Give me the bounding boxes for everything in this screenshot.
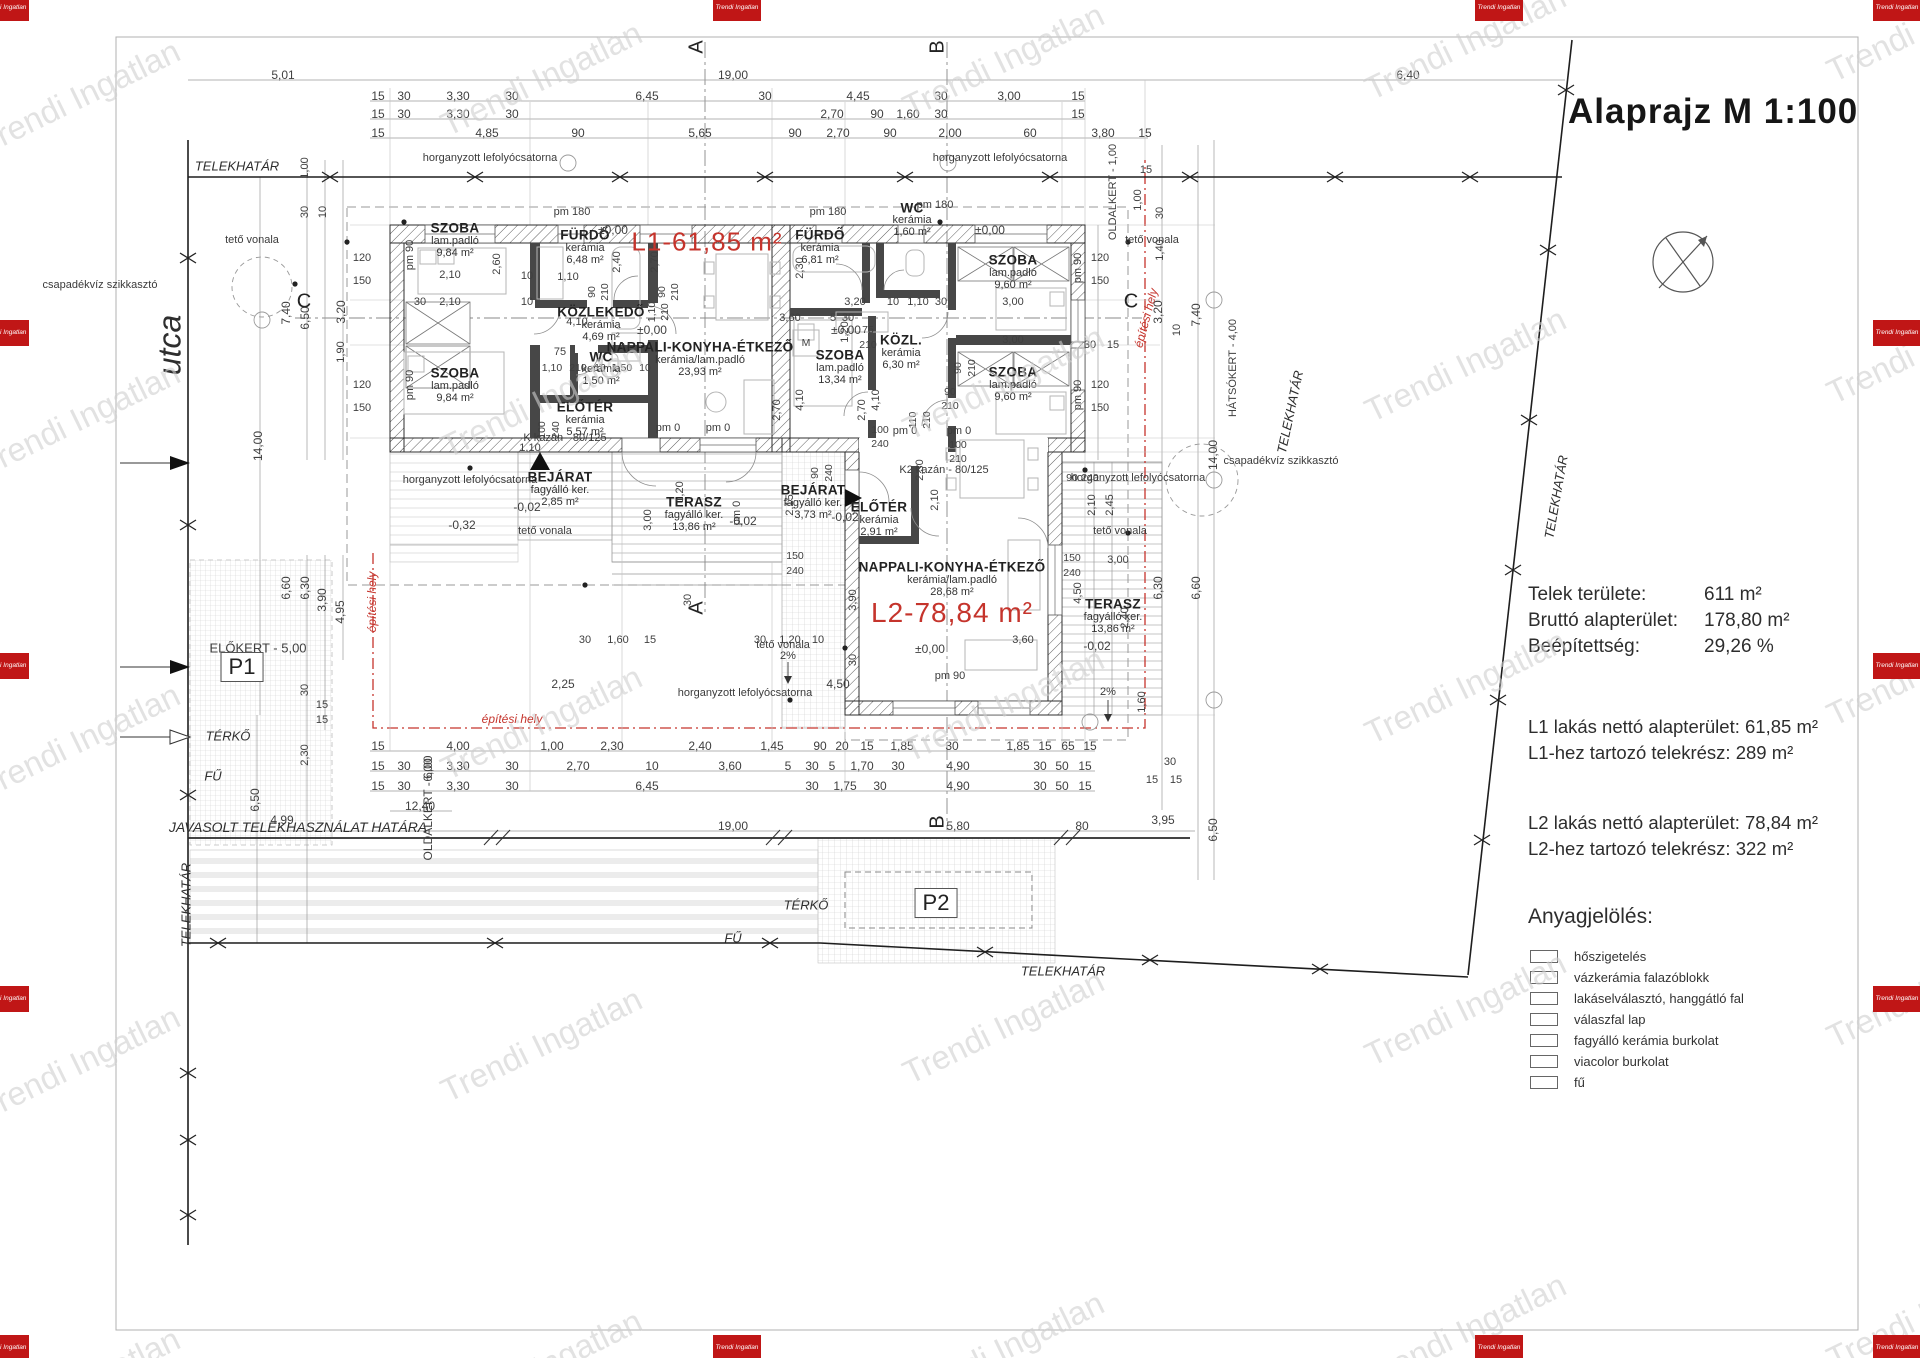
dim-label: 6,30	[298, 576, 312, 599]
dim-label: 10	[645, 759, 658, 773]
watermark-stamp: Trendi Ingatlan	[1873, 0, 1920, 21]
dim-label: 6,50	[248, 788, 262, 811]
room-label: SZOBA	[431, 366, 480, 381]
dim-label: 80	[1075, 819, 1088, 833]
dim-label: 15	[644, 634, 656, 646]
legend-label: hőszigetelés	[1574, 949, 1646, 964]
dim-label: 30	[754, 634, 766, 646]
room-label: SZOBA	[989, 365, 1038, 380]
dim-label: 30	[1084, 339, 1096, 351]
room-sublabel: 9,84 m²	[436, 392, 473, 404]
dim-label: 30	[505, 107, 518, 121]
dim-label: 10	[812, 634, 824, 646]
dim-label: 30	[505, 89, 518, 103]
slope-label: 2%	[780, 650, 796, 662]
boundary-label: TELEKHATÁR	[179, 863, 194, 947]
dim-label: 2,10	[439, 296, 460, 308]
dim-label: 90	[656, 286, 668, 298]
dim-label: 1,60	[896, 107, 919, 121]
dim-label: 4,99	[270, 813, 293, 827]
watermark-stamp: Trendi Ingatlan	[713, 1335, 761, 1358]
dim-label: 5,65	[688, 126, 711, 140]
room-label: SZOBA	[816, 348, 865, 363]
gutter-label: horganyzott lefolyócsatorna	[423, 152, 558, 164]
dim-label: M	[622, 341, 631, 353]
dim-label: 90	[809, 467, 821, 479]
page-title: Alaprajz M 1:100	[1568, 92, 1858, 132]
dim-label: 2,45	[1104, 494, 1116, 515]
dim-label: 2,25	[551, 677, 574, 691]
dim-label: 240	[786, 565, 804, 577]
watermark-stamp: Trendi Ingatlan	[0, 320, 29, 346]
dim-label: 150	[353, 402, 371, 414]
dim-label: 3,00	[1002, 296, 1023, 308]
unit-summary-line: L2-hez tartozó telekrész: 322 m²	[1528, 838, 1793, 860]
bar-swatch-icon	[1530, 1013, 1558, 1026]
unit-l2-area: L2-78,84 m²	[871, 597, 1033, 629]
dim-label: 30	[505, 779, 518, 793]
dim-label: -0,02	[1083, 639, 1110, 653]
grid-swatch-icon	[1530, 1055, 1558, 1068]
dim-label: 3,00	[1002, 334, 1023, 346]
floorplan-sheet: Alaprajz M 1:100 Anyagjelölés: hőszigete…	[0, 0, 1920, 1358]
dim-label: 15	[371, 126, 384, 140]
summary-value: 178,80 m²	[1704, 610, 1790, 632]
summary-label: Bruttó alapterület:	[1528, 610, 1678, 631]
room-sublabel: 1,50 m²	[582, 375, 619, 387]
dim-label: 120	[353, 379, 371, 391]
dim-label: 2,30	[600, 739, 623, 753]
legend-label: fagyálló kerámia burkolat	[1574, 1033, 1719, 1048]
dim-label: pm 0	[706, 422, 730, 434]
dim-label: 30	[1164, 756, 1176, 768]
dim-label: 150	[1063, 552, 1081, 564]
legend-label: fű	[1574, 1075, 1585, 1090]
dim-label: 90	[1066, 472, 1078, 484]
dim-label: 150	[1091, 275, 1109, 287]
summary-row: Beépítettség:29,26 %	[1528, 636, 1858, 658]
dim-label: 2,30	[794, 257, 806, 278]
dim-label: -0,02	[513, 500, 540, 514]
unit-summary-line: L1 lakás nettó alapterület: 61,85 m²	[1528, 716, 1818, 738]
dim-label: 15	[1078, 759, 1091, 773]
section-marker-a: A	[686, 40, 709, 53]
dim-label: 20	[835, 739, 848, 753]
dim-label: 2,70	[771, 399, 783, 420]
dim-label: 100	[949, 439, 967, 451]
dim-label: 210	[659, 303, 671, 321]
dim-label: 30	[505, 759, 518, 773]
crosshatch-swatch-icon	[1530, 950, 1558, 963]
dim-label: 1,50	[612, 362, 632, 374]
dim-label: pm 0	[656, 422, 680, 434]
room-sublabel: 9,60 m²	[994, 391, 1031, 403]
room-sublabel: lam.padló	[431, 380, 479, 392]
building-zone-label: építési hely	[365, 572, 379, 633]
room-label: FÜRDŐ	[795, 228, 845, 243]
dim-label: 110	[907, 412, 919, 429]
dim-label: 6,45	[635, 89, 658, 103]
watermark-stamp: Trendi Ingatlan	[1873, 986, 1920, 1012]
summary-value: 29,26 %	[1704, 636, 1774, 658]
dim-label: 120	[1091, 252, 1109, 264]
watermark-stamp: Trendi Ingatlan	[1873, 653, 1920, 679]
dim-label: 75	[554, 346, 566, 358]
dim-label: 4,10	[566, 316, 587, 328]
dim-label: 1,00	[1132, 189, 1144, 210]
dim-label: 150	[786, 550, 804, 562]
dim-label: 6,30	[1151, 576, 1165, 599]
material-legend: hőszigetelésvázkerámia falazóblokklakáse…	[1530, 946, 1744, 1093]
dim-label: 50	[1055, 779, 1068, 793]
dim-label: 1,20	[779, 634, 800, 646]
dim-label: 30	[934, 89, 947, 103]
dim-label: 90	[944, 386, 956, 398]
summary-row: Bruttó alapterület:178,80 m²	[1528, 610, 1858, 632]
section-marker-c: C	[1124, 291, 1138, 314]
dim-label: 210	[859, 339, 877, 351]
room-sublabel: 5,57 m²	[566, 426, 603, 438]
dim-label: 4,50	[826, 677, 849, 691]
dim-label: 30	[397, 89, 410, 103]
dim-label: 4,90	[946, 779, 969, 793]
plain-swatch-icon	[1530, 1034, 1558, 1047]
dim-label: 6,40	[1396, 68, 1419, 82]
dim-label: 2,40	[611, 251, 623, 272]
unit-summary-line: L1-hez tartozó telekrész: 289 m²	[1528, 742, 1793, 764]
dim-label: pm 0	[947, 425, 971, 437]
dim-label: 2,70	[566, 759, 589, 773]
dim-label: 150	[1091, 402, 1109, 414]
dim-label: 210	[921, 411, 933, 429]
room-label: NAPPALI-KONYHA-ÉTKEZŐ	[859, 560, 1046, 575]
paving-label: TÉRKŐ	[784, 898, 829, 913]
dim-label: 65	[1061, 739, 1074, 753]
dim-label: 15	[371, 107, 384, 121]
room-sublabel: 13,86 m²	[672, 521, 715, 533]
room-sublabel: 6,81 m²	[801, 254, 838, 266]
dim-label: 3,20	[334, 300, 348, 323]
dim-label: 30	[299, 206, 311, 218]
dim-label: 2,15	[784, 494, 796, 515]
diag-swatch-icon	[1530, 971, 1558, 984]
legend-item: vázkerámia falazóblokk	[1530, 967, 1744, 988]
dim-label: 4,00	[446, 739, 469, 753]
street-label: utca	[152, 315, 189, 375]
boundary-label: TELEKHATÁR	[195, 159, 279, 174]
dim-label: 3,00	[997, 89, 1020, 103]
dim-label: 10	[1171, 324, 1183, 336]
dim-label: 15	[1140, 164, 1152, 176]
dim-label: 10	[639, 362, 651, 374]
dim-label: 3,30	[446, 107, 469, 121]
dim-label: pm 0	[731, 501, 743, 525]
dim-label: pm 90	[404, 370, 416, 401]
dim-label: 15	[1170, 774, 1182, 786]
dim-label: 6,60	[279, 576, 293, 599]
room-sublabel: 1,60 m²	[893, 226, 930, 238]
soakaway-label: csapadékvíz szikkasztó	[1224, 455, 1339, 467]
dim-label: 210	[966, 359, 978, 377]
dim-label: 15	[1038, 739, 1051, 753]
dim-label: 1,20	[839, 321, 851, 342]
back-garden-label: HÁTSÓKERT - 4,00	[1227, 319, 1239, 417]
dim-label: 1,20	[674, 481, 686, 502]
dim-label: 30	[397, 107, 410, 121]
dim-label: 1,60	[1136, 691, 1148, 712]
dim-label: 3,60	[718, 759, 741, 773]
legend-label: válaszfal lap	[1574, 1012, 1646, 1027]
dim-label: 30	[945, 739, 958, 753]
side-garden-label: OLDALKERT - 1,00	[1107, 144, 1119, 240]
dim-label: 1,10	[542, 362, 562, 374]
dim-label: 90	[586, 286, 598, 298]
parking-marker-p1: P1	[221, 652, 264, 682]
dim-label: 3,80	[1091, 126, 1114, 140]
room-label: ELŐTÉR	[851, 500, 908, 515]
dim-label: 240	[871, 438, 889, 450]
dim-label: 5,80	[946, 819, 969, 833]
room-sublabel: 9,84 m²	[436, 247, 473, 259]
dim-label: 210	[569, 362, 587, 374]
watermark-stamp: Trendi Ingatlan	[0, 986, 29, 1012]
dim-label: 30	[397, 759, 410, 773]
dim-label: 15	[1071, 107, 1084, 121]
room-sublabel: kerámia/lam.padló	[655, 354, 745, 366]
dim-label: 2,30	[299, 744, 311, 765]
dim-label: 30	[847, 654, 859, 666]
gutter-label: horganyzott lefolyócsatorna	[678, 687, 813, 699]
unit-summary-line: L2 lakás nettó alapterület: 78,84 m²	[1528, 812, 1818, 834]
dim-label: 15	[371, 89, 384, 103]
dim-label: 210	[669, 283, 681, 301]
dim-label: 210	[949, 453, 967, 465]
room-label: SZOBA	[989, 253, 1038, 268]
dim-label: 90	[883, 126, 896, 140]
dim-label: 3,60	[1012, 634, 1033, 646]
dim-label: 120	[1091, 379, 1109, 391]
dim-label: 30	[934, 107, 947, 121]
dim-label: 6,00	[421, 758, 435, 781]
dim-label: 1,10	[557, 271, 578, 283]
room-sublabel: 9,60 m²	[994, 279, 1031, 291]
dim-label: 50	[1055, 759, 1068, 773]
legend-label: viacolor burkolat	[1574, 1054, 1669, 1069]
dim-label: 1,70	[850, 759, 873, 773]
room-sublabel: 6,48 m²	[566, 254, 603, 266]
dim-label: 4,45	[846, 89, 869, 103]
dim-label: 3,60	[779, 312, 800, 324]
dim-label: pm 90	[935, 670, 966, 682]
room-sublabel: 13,34 m²	[818, 374, 861, 386]
dim-label: pm 90	[1072, 380, 1084, 411]
dim-label: 100	[871, 424, 889, 436]
roof-line-label: tető vonala	[1093, 525, 1147, 537]
dim-label: 10	[521, 270, 533, 282]
dim-label: 1,10	[519, 442, 540, 454]
dim-label: 14,00	[1206, 440, 1220, 470]
dim-label: 30	[758, 89, 771, 103]
dim-label: 3,30	[446, 759, 469, 773]
dim-label: 15	[860, 739, 873, 753]
room-sublabel: lam.padló	[989, 379, 1037, 391]
dim-label: 150	[353, 275, 371, 287]
dim-label: 10	[887, 296, 899, 308]
room-sublabel: kerámia	[565, 414, 604, 426]
watermark-stamp: Trendi Ingatlan	[1475, 1335, 1523, 1358]
room-sublabel: kerámia	[859, 514, 898, 526]
room-sublabel: fagyálló ker.	[1084, 611, 1143, 623]
plot-boundaries	[188, 40, 1572, 1245]
watermark-stamp: Trendi Ingatlan	[0, 1335, 29, 1358]
dim-label: 10	[521, 296, 533, 308]
dim-label: 4,90	[946, 759, 969, 773]
dim-label: 90	[813, 739, 826, 753]
dim-label: 210	[599, 283, 611, 301]
dim-label: 15	[371, 759, 384, 773]
dim-label: 1,00	[299, 157, 311, 178]
room-sublabel: 28,68 m²	[930, 586, 973, 598]
section-marker-b: B	[927, 40, 950, 53]
dim-label: pm 180	[554, 206, 591, 218]
boiler-label: K2 kazán - 80/125	[899, 464, 988, 476]
dim-label: 3,90	[847, 589, 859, 610]
proposed-use-boundary-label: JAVASOLT TELEKHASZNÁLAT HATÁRA	[169, 819, 427, 835]
room-label: SZOBA	[431, 221, 480, 236]
dim-label: ±0,00	[598, 223, 628, 237]
dim-label: 12,40	[405, 799, 435, 813]
room-label: ELŐTÉR	[557, 400, 614, 415]
dim-label: 1,75	[833, 779, 856, 793]
dim-label: 2,70	[820, 107, 843, 121]
north-arrow-icon	[1653, 232, 1713, 292]
dim-label: 240	[550, 421, 562, 439]
dim-label: 30	[414, 296, 426, 308]
dim-label: 30	[873, 779, 886, 793]
dim-label: 3,30	[446, 779, 469, 793]
dim-label: 5,01	[271, 68, 294, 82]
legend-item: válaszfal lap	[1530, 1009, 1744, 1030]
dim-label: 6,50	[1206, 818, 1220, 841]
dim-label: 6,60	[1189, 576, 1203, 599]
dim-label: 7,40	[279, 301, 293, 324]
dim-label: -0,32	[448, 518, 475, 532]
paving-label: TÉRKŐ	[206, 729, 251, 744]
dim-label: 90	[571, 126, 584, 140]
room-sublabel: kerámia/lam.padló	[907, 574, 997, 586]
dim-label: 1,90	[335, 341, 347, 362]
dim-label: 2,10	[929, 489, 941, 510]
parking-marker-p2: P2	[915, 888, 958, 918]
dim-label: 4,10	[794, 389, 806, 410]
dim-label: 1,00	[540, 739, 563, 753]
grass-label: FŰ	[724, 931, 741, 946]
dim-label: ±0,00	[975, 223, 1005, 237]
dim-label: 5	[785, 759, 792, 773]
room-sublabel: kerámia	[800, 242, 839, 254]
dim-label: 4,85	[475, 126, 498, 140]
dim-label: 30	[682, 594, 694, 606]
room-sublabel: 23,93 m²	[678, 366, 721, 378]
dim-label: pm 90	[1072, 253, 1084, 284]
legend-item: fagyálló kerámia burkolat	[1530, 1030, 1744, 1051]
dim-label: 3,00	[642, 509, 654, 530]
dim-label: 2,00	[938, 126, 961, 140]
roof-line-label: tető vonala	[1125, 234, 1179, 246]
room-sublabel: kerámia	[881, 347, 920, 359]
dim-label: 4,95	[333, 600, 347, 623]
diag2-swatch-icon	[1530, 992, 1558, 1005]
dim-label: 240	[1081, 472, 1099, 484]
dim-label: 15	[316, 699, 328, 711]
dim-label: 3,20	[1151, 300, 1165, 323]
room-label: KÖZL.	[880, 333, 922, 348]
dim-label: 1,60	[607, 634, 628, 646]
legend-item: lakáselválasztó, hanggátló fal	[1530, 988, 1744, 1009]
room-sublabel: lam.padló	[989, 267, 1037, 279]
dim-label: pm 180	[917, 199, 954, 211]
dim-label: ±0,00	[637, 323, 667, 337]
dim-label: 90	[870, 107, 883, 121]
dim-label: 10	[317, 206, 329, 218]
dim-label: 1,40	[1154, 239, 1166, 260]
watermark-stamp: Trendi Ingatlan	[1475, 0, 1523, 21]
room-sublabel: kerámia	[892, 214, 931, 226]
room-sublabel: 2,91 m²	[860, 526, 897, 538]
dim-label: 2,70	[649, 251, 661, 272]
dim-label: 4,50	[1072, 582, 1084, 603]
dim-label: 10	[594, 362, 606, 374]
summary-label: Beépítettség:	[1528, 636, 1640, 657]
dim-label: 3,95	[1151, 813, 1174, 827]
dim-label: 3,20	[844, 296, 865, 308]
dim-label: ±0,00	[915, 642, 945, 656]
room-sublabel: fagyálló ker.	[665, 509, 724, 521]
dim-label: 19,00	[718, 68, 748, 82]
dim-label: 210	[941, 400, 959, 412]
dim-label: 3,90	[315, 588, 329, 611]
dim-label: 30	[1154, 207, 1166, 219]
dim-label: 240	[1063, 567, 1081, 579]
dim-label: 1,10	[646, 302, 658, 322]
watermark-stamp: Trendi Ingatlan	[1873, 1335, 1920, 1358]
dim-label: 3,00	[1107, 554, 1128, 566]
dim-label: 15	[1138, 126, 1151, 140]
dim-label: pm 90	[404, 240, 416, 271]
dim-label: 15	[1083, 739, 1096, 753]
dim-label: 6,50	[298, 306, 312, 329]
dim-label: 15	[371, 739, 384, 753]
watermark-stamp: Trendi Ingatlan	[1873, 320, 1920, 346]
dim-label: pm 180	[810, 206, 847, 218]
dim-label: 30	[935, 296, 947, 308]
room-sublabel: kerámia	[565, 242, 604, 254]
watermark-stamp: Trendi Ingatlan	[0, 653, 29, 679]
room-label: TERASZ	[1085, 597, 1141, 612]
dim-label: 5	[830, 312, 836, 324]
dim-label: 1,10	[907, 296, 928, 308]
room-sublabel: lam.padló	[431, 235, 479, 247]
gutter-label: horganyzott lefolyócsatorna	[933, 152, 1068, 164]
dim-label: 4,10	[870, 389, 882, 410]
dim-label: 15	[1078, 779, 1091, 793]
dots-swatch-icon	[1530, 1076, 1558, 1089]
legend-item: viacolor burkolat	[1530, 1051, 1744, 1072]
watermark-stamp: Trendi Ingatlan	[0, 0, 29, 21]
room-label: NAPPALI-KONYHA-ÉTKEZŐ	[607, 340, 794, 355]
dim-label: 2,70	[856, 399, 868, 420]
dim-label: 30	[805, 779, 818, 793]
